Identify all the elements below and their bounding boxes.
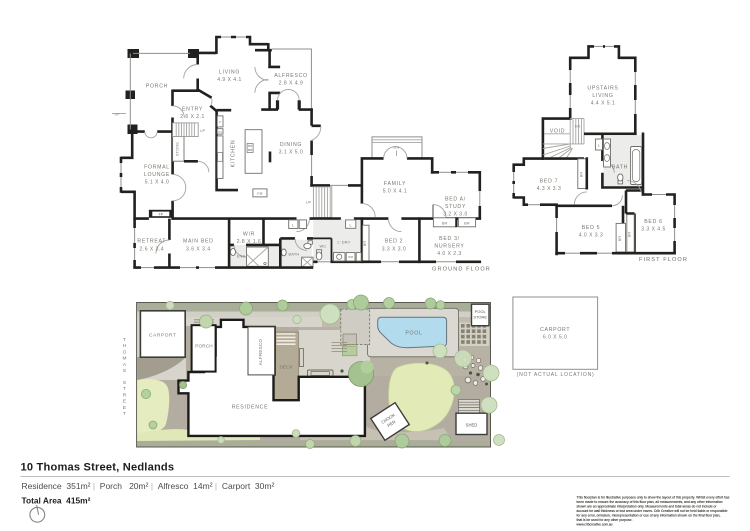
svg-text:UP: UP xyxy=(115,113,121,117)
svg-text:BR: BR xyxy=(578,172,583,178)
svg-text:WM: WM xyxy=(348,255,354,259)
svg-text:CARPORT: CARPORT xyxy=(540,327,570,333)
svg-text:www.cribcreative.com.au: www.cribcreative.com.au xyxy=(577,523,613,527)
svg-text:LIVING: LIVING xyxy=(592,93,613,99)
svg-text:DECK: DECK xyxy=(280,365,294,370)
svg-text:STORE: STORE xyxy=(175,142,180,157)
svg-text:GROUND FLOOR: GROUND FLOOR xyxy=(432,267,491,273)
svg-text:BR: BR xyxy=(627,232,632,238)
svg-text:FIRST FLOOR: FIRST FLOOR xyxy=(639,257,688,263)
svg-text:RETREAT: RETREAT xyxy=(137,239,166,245)
svg-text:FP: FP xyxy=(159,213,164,217)
svg-text:BED 7: BED 7 xyxy=(540,179,559,185)
svg-text:CARPORT: CARPORT xyxy=(149,333,177,339)
svg-text:Total Area 415m²: Total Area 415m² xyxy=(22,496,91,506)
svg-text:FR: FR xyxy=(257,191,263,196)
svg-text:RESIDENCE: RESIDENCE xyxy=(232,405,269,411)
svg-text:FORMAL: FORMAL xyxy=(144,165,170,171)
svg-text:DN: DN xyxy=(575,125,581,129)
svg-text:DINING: DINING xyxy=(280,142,302,148)
svg-text:shown are an approximate inter: shown are an approximate interpretation … xyxy=(577,505,718,509)
svg-text:4.4 X 5.1: 4.4 X 5.1 xyxy=(591,101,616,107)
svg-text:(NOT ACTUAL LOCATION): (NOT ACTUAL LOCATION) xyxy=(517,372,595,378)
svg-text:KITCHEN: KITCHEN xyxy=(231,140,237,168)
svg-text:4.9 X 4.1: 4.9 X 4.1 xyxy=(217,77,242,83)
svg-text:LOUNGE: LOUNGE xyxy=(144,172,170,178)
svg-text:3.2 X 3.0: 3.2 X 3.0 xyxy=(443,212,468,218)
svg-text:OV: OV xyxy=(218,130,222,134)
svg-text:5.1 X 4.0: 5.1 X 4.0 xyxy=(145,180,170,186)
svg-text:This floorplan is for illustra: This floorplan is for illustrative purpo… xyxy=(577,496,730,500)
svg-text:BED 6: BED 6 xyxy=(644,219,663,225)
svg-text:VOID: VOID xyxy=(550,129,565,135)
svg-text:ENTRY: ENTRY xyxy=(182,107,203,113)
svg-text:BATH: BATH xyxy=(289,252,300,257)
svg-text:NURSERY: NURSERY xyxy=(434,244,464,250)
svg-text:UP: UP xyxy=(306,201,312,205)
svg-text:for any error, omission, misre: for any error, omission, misrepresentati… xyxy=(577,514,721,518)
svg-text:WC: WC xyxy=(320,244,327,249)
svg-text:PORCH: PORCH xyxy=(146,84,168,90)
svg-text:BATH: BATH xyxy=(612,165,628,171)
svg-text:4.0 X 3.3: 4.0 X 3.3 xyxy=(579,233,604,239)
svg-text:3.6 X 3.4: 3.6 X 3.4 xyxy=(186,247,211,253)
svg-text:BED A/: BED A/ xyxy=(445,197,466,203)
svg-text:been made to ensure the accura: been made to ensure the accuracy of this… xyxy=(577,500,723,504)
svg-text:STORE: STORE xyxy=(473,315,487,320)
svg-text:PORCH: PORCH xyxy=(195,344,213,349)
svg-text:BED 2: BED 2 xyxy=(385,239,404,245)
svg-text:FAMILY: FAMILY xyxy=(384,181,406,187)
svg-text:POOL: POOL xyxy=(475,309,487,314)
svg-text:2.6 X 2.1: 2.6 X 2.1 xyxy=(180,114,205,120)
svg-text:SHED: SHED xyxy=(466,423,478,428)
svg-text:BED 5: BED 5 xyxy=(582,225,601,231)
svg-text:2.8 X 1.6: 2.8 X 1.6 xyxy=(237,239,262,245)
svg-text:ALFRESCO: ALFRESCO xyxy=(258,339,263,366)
svg-text:BR: BR xyxy=(617,236,622,242)
svg-text:3.3 X 4.5: 3.3 X 4.5 xyxy=(641,227,666,233)
svg-text:MAIN BED: MAIN BED xyxy=(183,239,214,245)
svg-text:3.3 X 3.0: 3.3 X 3.0 xyxy=(382,247,407,253)
svg-text:4.3 X 3.3: 4.3 X 3.3 xyxy=(537,186,562,192)
svg-text:6.0 X 5.0: 6.0 X 5.0 xyxy=(543,335,568,341)
svg-text:STUDY: STUDY xyxy=(445,204,466,210)
svg-text:ENS: ENS xyxy=(237,254,246,259)
svg-text:2.8 X 4.9: 2.8 X 4.9 xyxy=(279,81,304,87)
svg-text:3.1 X 5.0: 3.1 X 5.0 xyxy=(279,150,304,156)
svg-text:BR: BR xyxy=(362,241,367,247)
svg-text:10 Thomas Street, Nedlands: 10 Thomas Street, Nedlands xyxy=(21,462,175,474)
svg-text:2.6 X 3.4: 2.6 X 3.4 xyxy=(140,247,165,253)
svg-text:BR: BR xyxy=(464,221,470,226)
svg-text:ALFRESCO: ALFRESCO xyxy=(274,73,308,79)
svg-text:WIR: WIR xyxy=(243,232,255,238)
svg-text:5.0 X 4.1: 5.0 X 4.1 xyxy=(383,189,408,195)
svg-text:BR: BR xyxy=(442,221,448,226)
svg-text:account for wall thickness or: account for wall thickness or lost area … xyxy=(577,509,728,513)
svg-text:LIVING: LIVING xyxy=(219,70,240,76)
svg-text:L’ DRY: L’ DRY xyxy=(337,240,350,245)
svg-text:P: P xyxy=(219,120,221,124)
svg-text:UP: UP xyxy=(200,129,206,133)
svg-text:BED 3/: BED 3/ xyxy=(439,236,460,242)
svg-text:that is be used for any other: that is be used for any other purpose. xyxy=(577,518,633,522)
svg-text:4.0 X 2.3: 4.0 X 2.3 xyxy=(437,251,462,257)
svg-text:POOL: POOL xyxy=(405,331,422,337)
svg-text:UPSTAIRS: UPSTAIRS xyxy=(587,86,618,92)
svg-text:Residence 351m² | Porch 20: Residence 351m² | Porch 20m² | Alfresco … xyxy=(22,481,275,491)
